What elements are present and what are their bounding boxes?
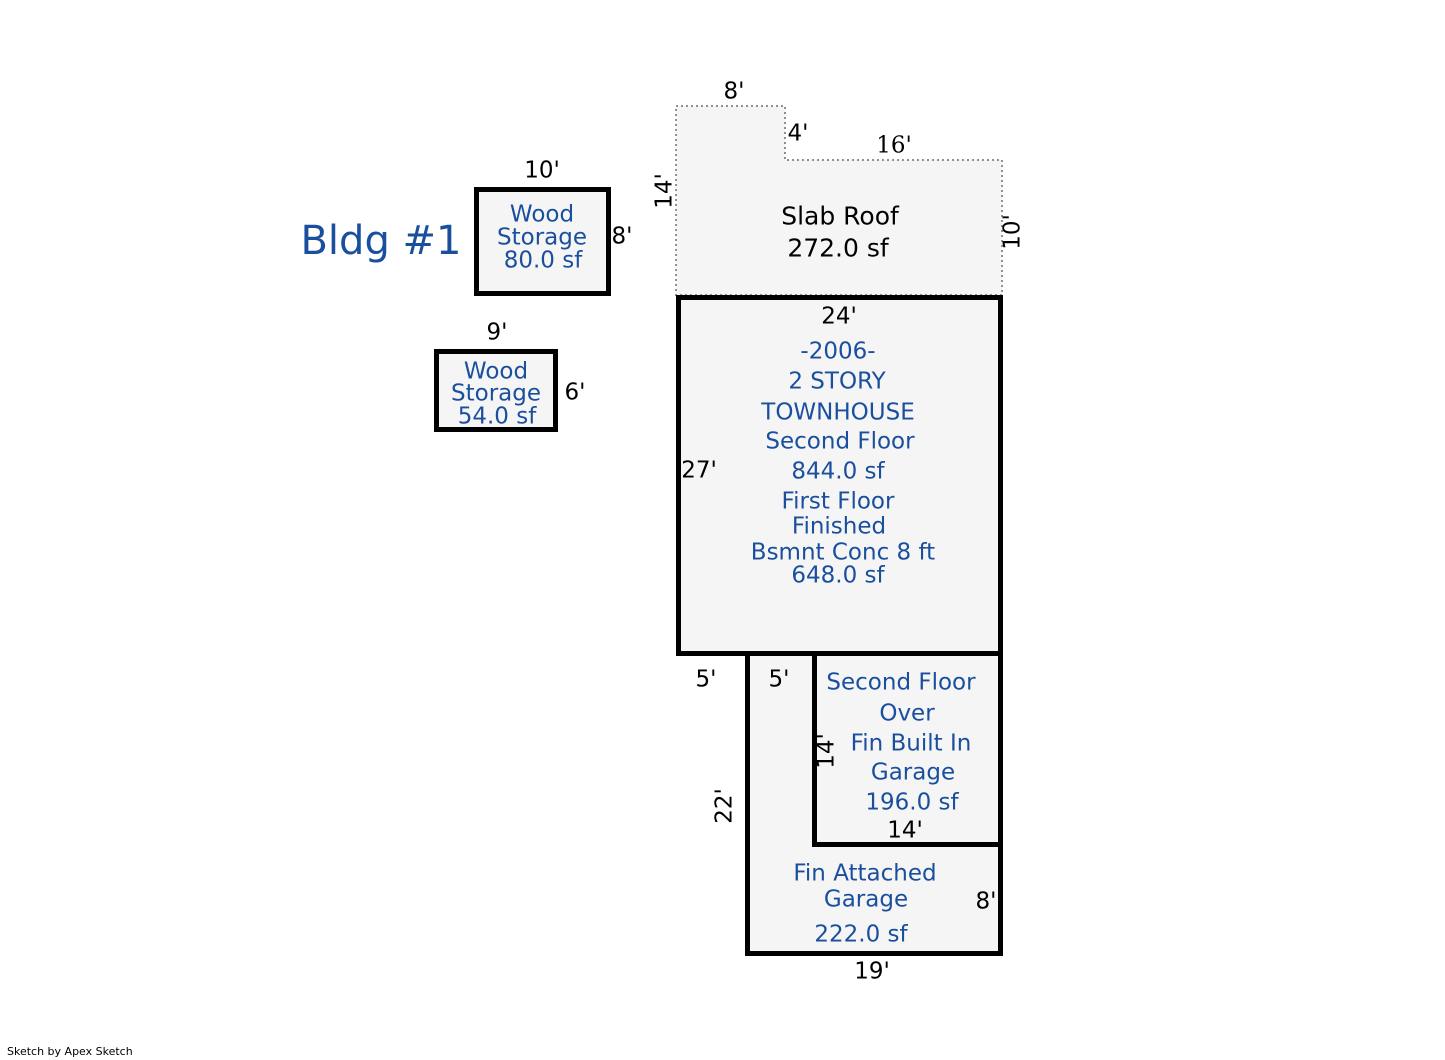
dim-townhouse-left: 27' — [681, 460, 717, 483]
garage-label-line1: Fin Attached — [793, 863, 936, 886]
dim-garage-bottom: 19' — [854, 961, 890, 984]
dim-ws54-top: 9' — [487, 322, 508, 345]
dim-ws80-right: 8' — [612, 226, 633, 249]
dim-ws54-right: 6' — [565, 382, 586, 405]
dim-garage-right: 8' — [976, 891, 997, 914]
ws80-label-line2: Storage — [497, 227, 587, 250]
dim-slab-notch: 4' — [788, 123, 809, 146]
townhouse-stories: 2 STORY — [788, 371, 885, 394]
sfo-garage-line3: Fin Built In — [851, 733, 972, 756]
dim-slab-top-right: 16' — [876, 135, 912, 158]
garage-label-line2: Garage — [824, 889, 908, 912]
townhouse-second-floor-label: Second Floor — [765, 431, 914, 454]
townhouse-second-floor-sf: 844.0 sf — [791, 461, 884, 484]
ws80-label-line1: Wood — [510, 204, 574, 227]
townhouse-finished-label: Finished — [792, 516, 886, 539]
sfo-garage-line1: Second Floor — [826, 672, 975, 695]
garage-area-sf: 222.0 sf — [814, 924, 907, 947]
ws54-label-line2: Storage — [451, 383, 541, 406]
sfo-garage-line4: Garage — [871, 762, 955, 785]
footer-credit: Sketch by Apex Sketch — [7, 1046, 133, 1057]
dim-garage-strip-width: 5' — [769, 669, 790, 692]
townhouse-type: TOWNHOUSE — [761, 402, 914, 425]
dim-sfo-garage-left: 14' — [816, 733, 839, 769]
dim-slab-top-left: 8' — [724, 81, 745, 104]
townhouse-bsmnt-sf: 648.0 sf — [791, 565, 884, 588]
sfo-garage-area-sf: 196.0 sf — [865, 792, 958, 815]
dim-sfo-garage-bottom: 14' — [887, 820, 923, 843]
dim-garage-offset-left: 5' — [696, 669, 717, 692]
slab-roof-label: Slab Roof — [781, 204, 899, 229]
sfo-garage-line2: Over — [879, 703, 934, 726]
slab-roof-area-sf: 272.0 sf — [787, 236, 888, 261]
dim-townhouse-top: 24' — [821, 306, 857, 329]
dim-garage-left: 22' — [714, 788, 737, 824]
ws80-area-sf: 80.0 sf — [504, 250, 583, 273]
dim-slab-left: 14' — [654, 173, 677, 209]
slab-roof-polygon — [676, 106, 1002, 295]
townhouse-bsmnt-label: Bsmnt Conc 8 ft — [751, 542, 935, 565]
building-title: Bldg #1 — [300, 221, 461, 261]
townhouse-first-floor-label: First Floor — [782, 491, 895, 514]
townhouse-year: -2006- — [800, 341, 875, 364]
dim-slab-right: 10' — [1002, 214, 1025, 250]
sketch-canvas: Bldg #1 10' 8' Wood Storage 80.0 sf 9' 6… — [0, 0, 1445, 1060]
ws54-area-sf: 54.0 sf — [458, 406, 537, 429]
dim-ws80-top: 10' — [524, 160, 560, 183]
